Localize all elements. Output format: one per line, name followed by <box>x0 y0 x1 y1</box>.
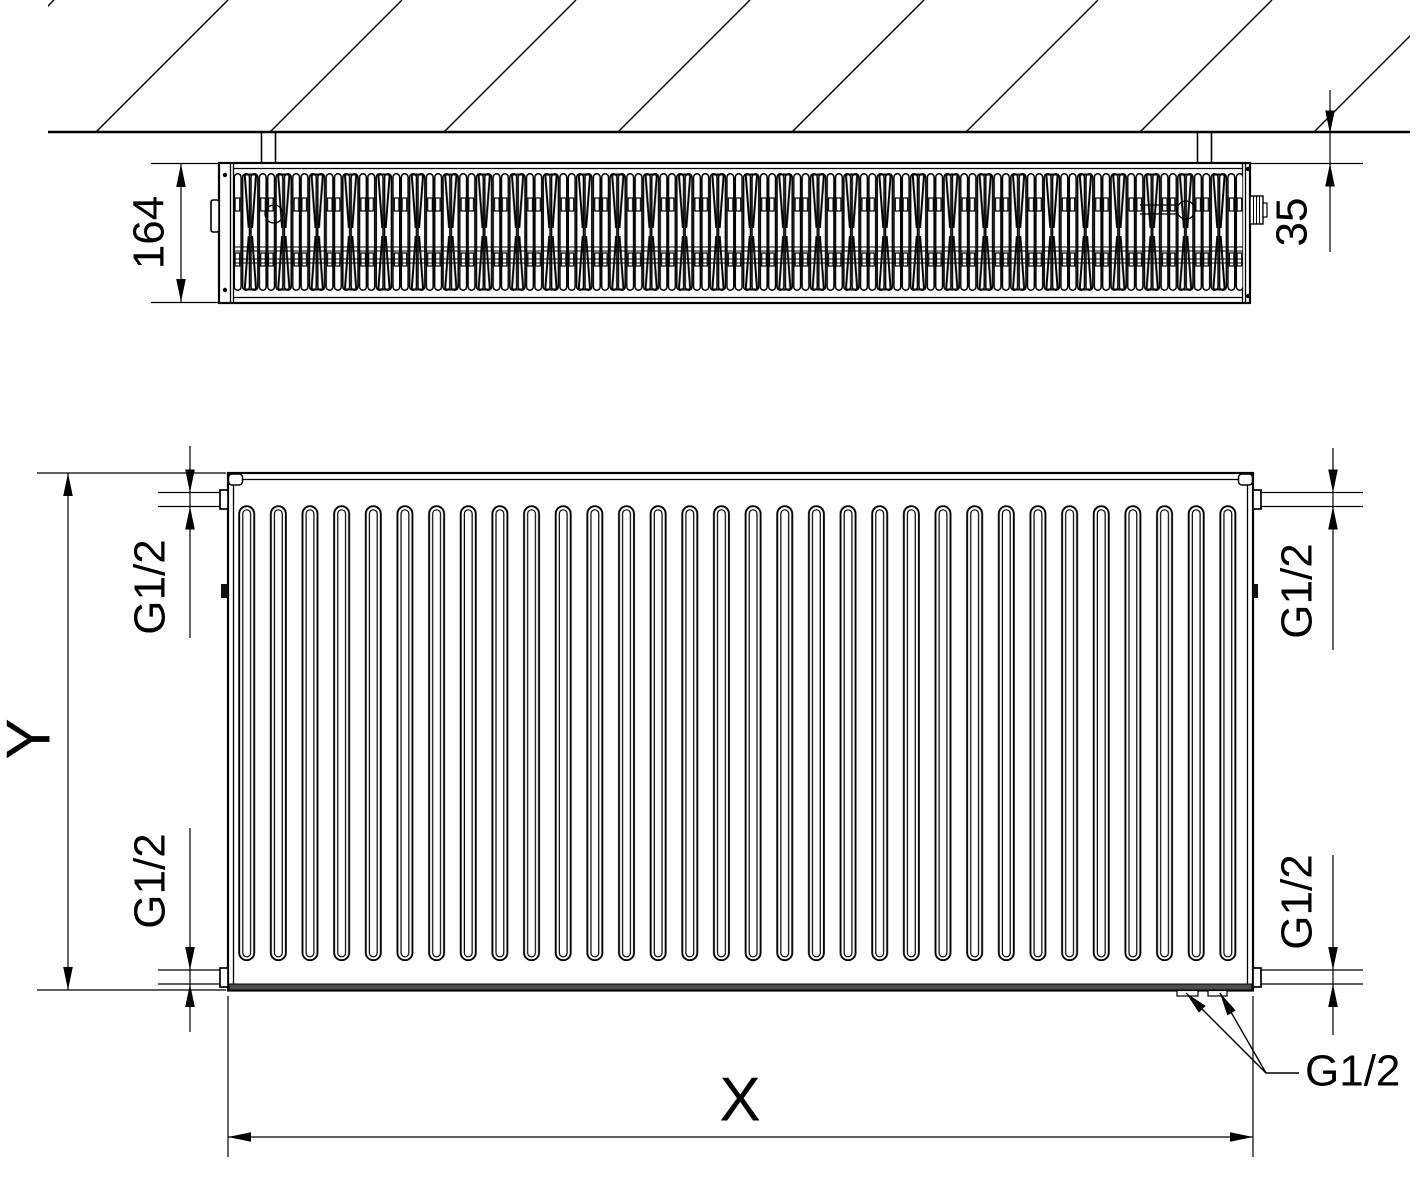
g12-callout-label: G1/2 <box>1305 1047 1400 1096</box>
callout-g12-bottom: G1/2 <box>1183 990 1401 1096</box>
mounting-brackets <box>262 133 1212 163</box>
left-connection-tab <box>211 200 219 232</box>
top-view <box>211 163 1267 303</box>
panel-grooves <box>238 505 1241 962</box>
g12-top-right-label: G1/2 <box>1273 543 1322 638</box>
left-edge-tab <box>221 584 228 598</box>
width-dimension-label: X <box>719 1066 760 1135</box>
dimension-g12-top-right: G1/2 <box>1273 448 1338 650</box>
valve-knob <box>1250 196 1267 224</box>
depth-dimension-label: 164 <box>125 196 174 269</box>
g12-bottom-right-label: G1/2 <box>1273 854 1322 949</box>
dimension-width-x: X <box>228 996 1253 1157</box>
ceiling-hatch <box>48 0 1410 132</box>
right-edge-tab <box>1253 584 1258 598</box>
dimension-height-y: Y <box>0 473 226 990</box>
dimension-g12-top-left: G1/2 <box>126 446 195 638</box>
radiator-technical-drawing: 164 35 <box>0 0 1427 1179</box>
drawing-canvas: 164 35 <box>0 0 1427 1179</box>
front-view <box>158 473 1363 996</box>
dimension-g12-bottom-right: G1/2 <box>1273 854 1338 1035</box>
convector-fins <box>234 173 1243 291</box>
dimension-164: 164 <box>125 164 219 303</box>
g12-top-left-label: G1/2 <box>126 539 175 634</box>
wall-distance-dimension-label: 35 <box>1268 198 1317 247</box>
g12-bottom-left-label: G1/2 <box>126 833 175 928</box>
bottom-grille-band <box>229 984 1252 990</box>
dimension-g12-bottom-left: G1/2 <box>126 828 195 1032</box>
height-dimension-label: Y <box>0 718 64 759</box>
bottom-connection-tab <box>1208 991 1227 997</box>
